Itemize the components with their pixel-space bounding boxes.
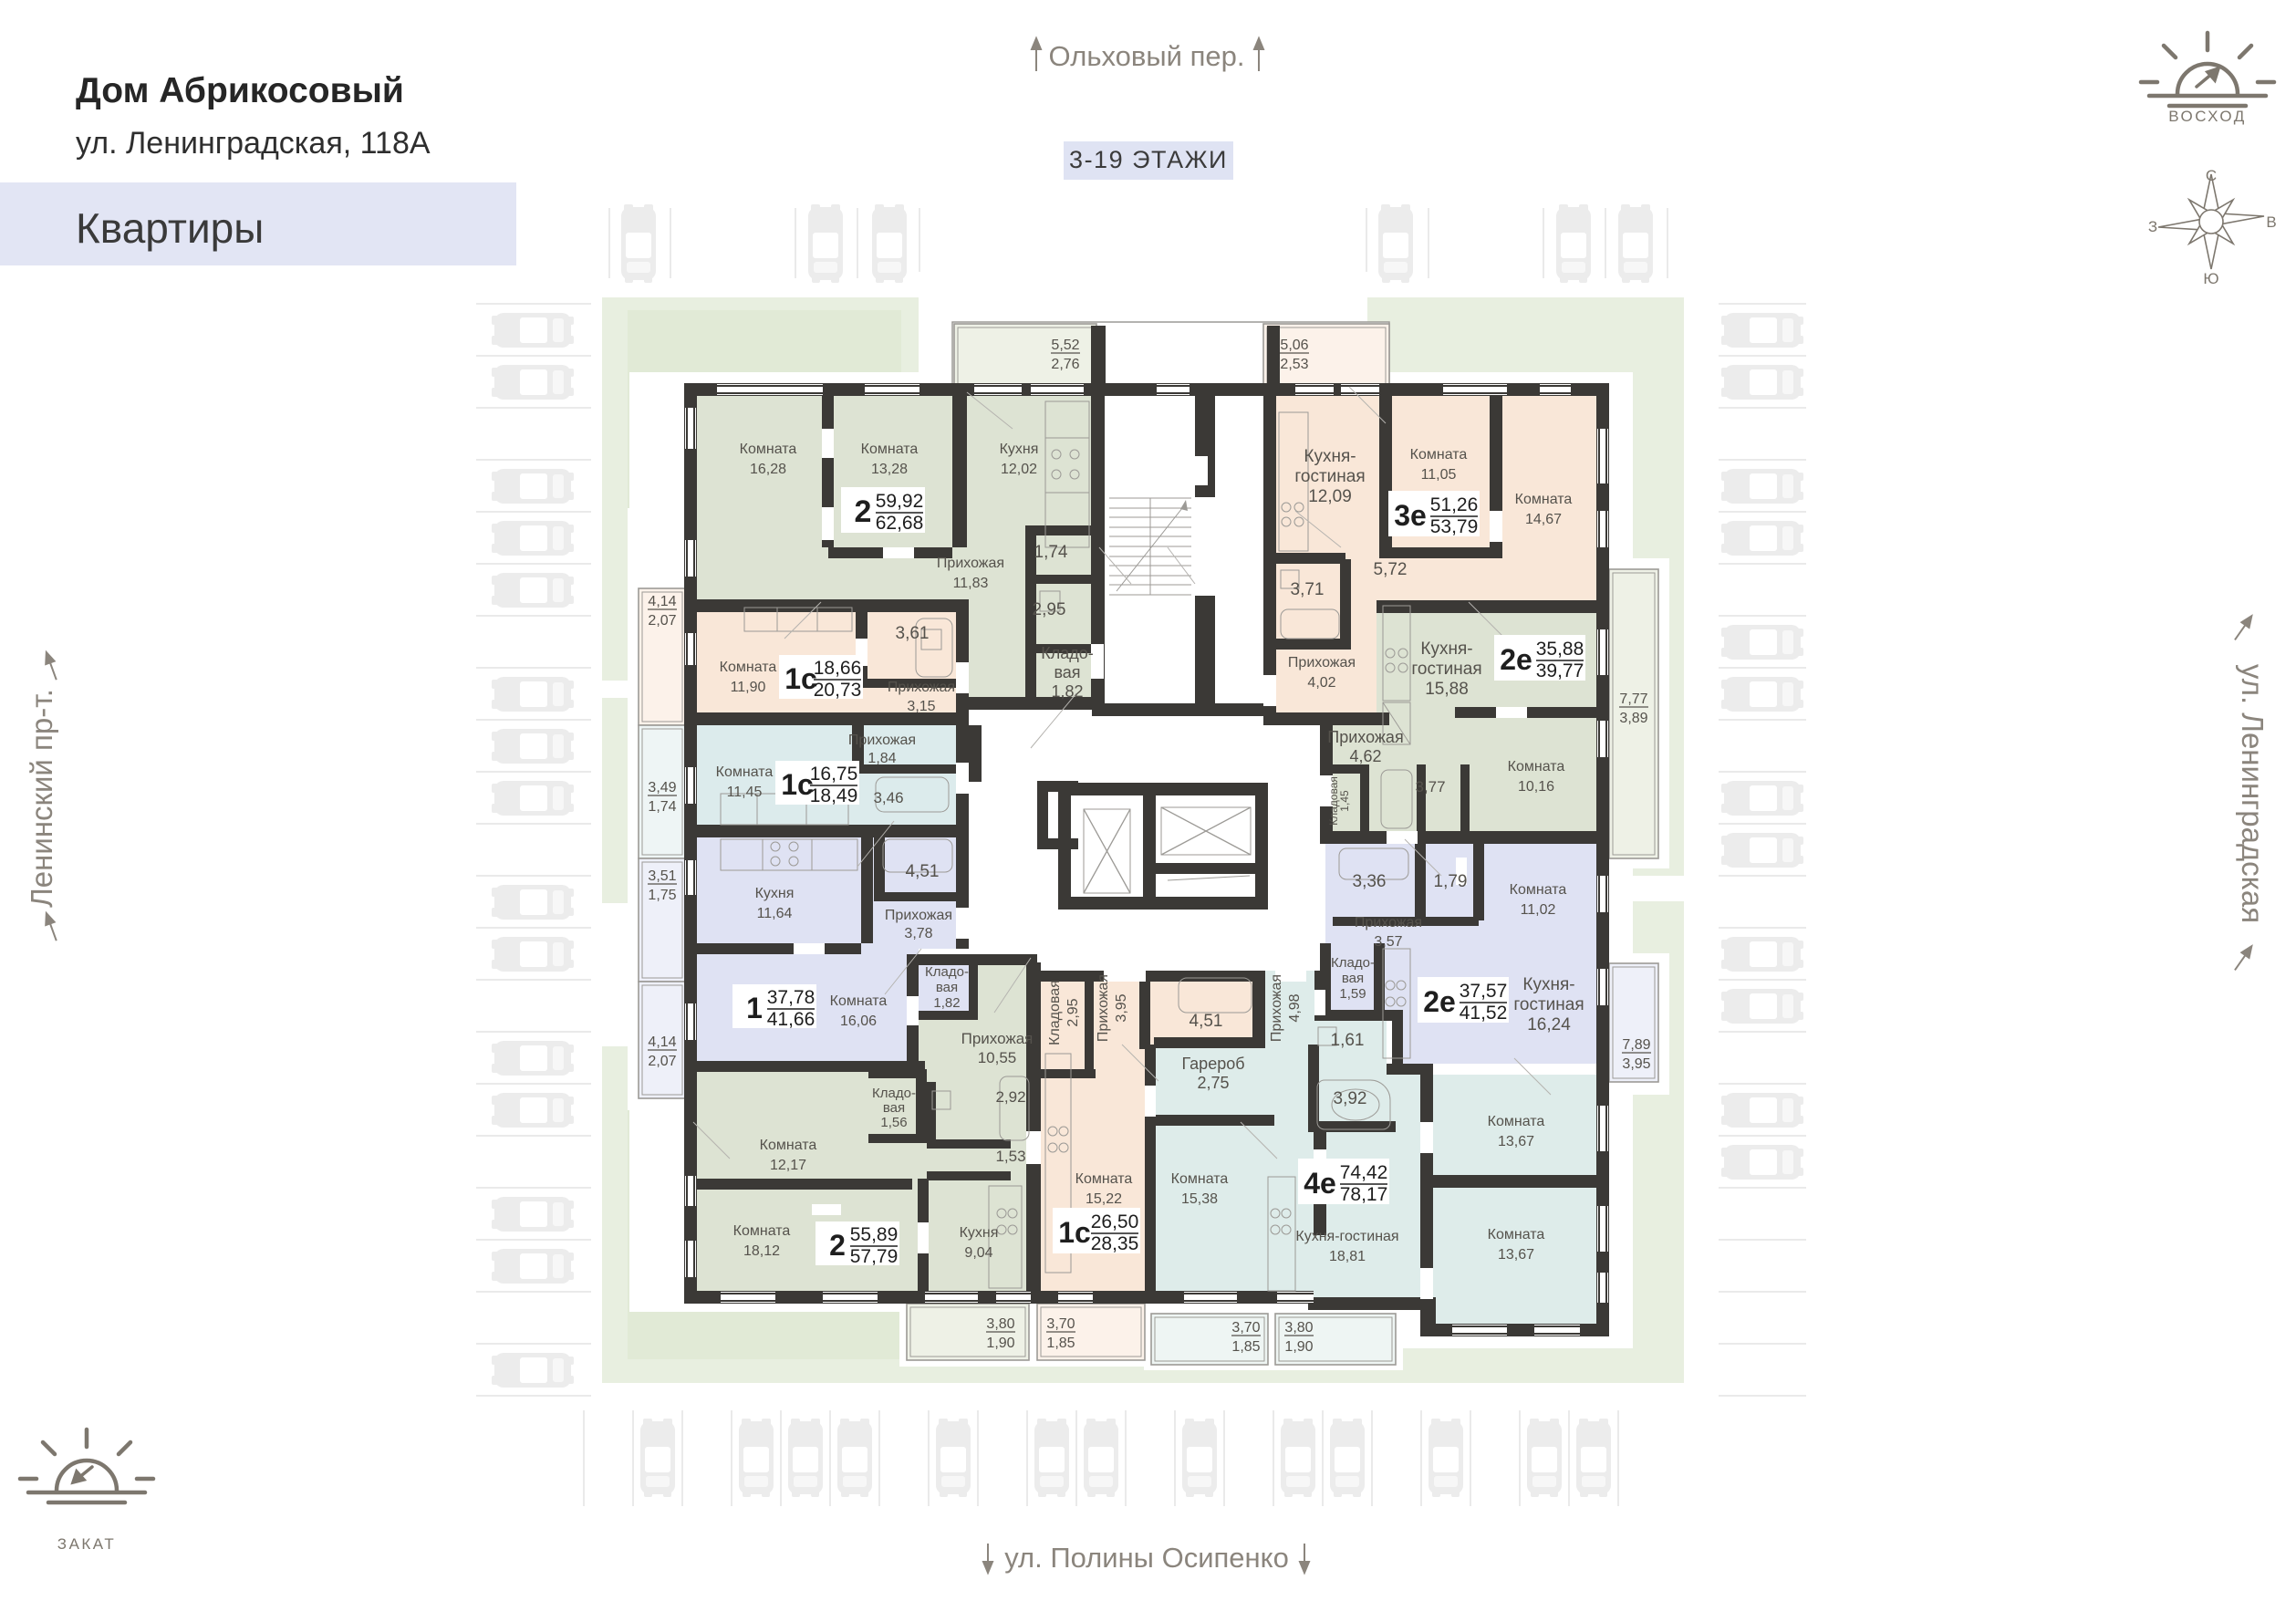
svg-text:20,73: 20,73 xyxy=(814,680,862,701)
svg-text:4,14: 4,14 xyxy=(648,594,676,609)
svg-text:18,66: 18,66 xyxy=(814,658,862,679)
svg-text:З: З xyxy=(2148,218,2157,235)
svg-text:1,53: 1,53 xyxy=(995,1148,1025,1165)
svg-text:41,66: 41,66 xyxy=(767,1009,816,1030)
svg-text:26,50: 26,50 xyxy=(1091,1211,1139,1232)
svg-text:Кухня: Кухня xyxy=(1000,442,1039,457)
svg-text:гостиная: гостиная xyxy=(1294,467,1365,486)
svg-text:7,77: 7,77 xyxy=(1619,691,1647,707)
svg-text:1,90: 1,90 xyxy=(1284,1339,1313,1355)
svg-text:1: 1 xyxy=(746,992,763,1024)
svg-text:1,74: 1,74 xyxy=(1034,543,1068,562)
svg-text:Кухня-: Кухня- xyxy=(1420,639,1472,659)
svg-text:3,15: 3,15 xyxy=(907,699,935,714)
svg-text:2,76: 2,76 xyxy=(1051,357,1079,372)
svg-text:28,35: 28,35 xyxy=(1091,1233,1139,1254)
svg-text:Ленинский пр-т.: Ленинский пр-т. xyxy=(25,689,58,908)
svg-text:1,56: 1,56 xyxy=(880,1115,907,1130)
svg-text:Прихожая: Прихожая xyxy=(1355,915,1422,930)
svg-text:62,68: 62,68 xyxy=(876,513,924,534)
svg-text:1,84: 1,84 xyxy=(867,751,896,766)
svg-text:1с: 1с xyxy=(1058,1216,1091,1249)
svg-text:Прихожая: Прихожая xyxy=(1096,974,1111,1042)
svg-text:Комната: Комната xyxy=(716,764,774,780)
svg-text:59,92: 59,92 xyxy=(876,491,924,512)
svg-text:3,80: 3,80 xyxy=(986,1316,1014,1332)
svg-text:ул. Ленинградская, 118А: ул. Ленинградская, 118А xyxy=(76,126,431,161)
svg-text:Комната: Комната xyxy=(1510,882,1567,898)
svg-text:15,22: 15,22 xyxy=(1086,1191,1122,1207)
svg-text:5,06: 5,06 xyxy=(1280,338,1308,353)
svg-text:Кладовая: Кладовая xyxy=(1047,980,1063,1045)
svg-text:Прихожая: Прихожая xyxy=(1269,974,1284,1042)
svg-text:Кладо-: Кладо- xyxy=(1331,955,1375,971)
svg-text:Прихожая: Прихожая xyxy=(888,680,955,695)
svg-text:11,83: 11,83 xyxy=(953,576,989,591)
svg-text:4,51: 4,51 xyxy=(906,862,940,881)
svg-text:Дом Абрикосовый: Дом Абрикосовый xyxy=(76,71,404,110)
svg-text:12,02: 12,02 xyxy=(1001,462,1037,477)
svg-text:5,52: 5,52 xyxy=(1051,338,1079,353)
svg-text:вая: вая xyxy=(936,980,958,995)
svg-text:1с: 1с xyxy=(784,662,817,695)
svg-text:3,89: 3,89 xyxy=(1619,711,1647,726)
svg-text:74,42: 74,42 xyxy=(1340,1162,1388,1183)
svg-text:3,78: 3,78 xyxy=(904,926,932,941)
svg-text:1,90: 1,90 xyxy=(986,1336,1014,1351)
svg-text:14,67: 14,67 xyxy=(1525,512,1562,527)
svg-text:2е: 2е xyxy=(1423,985,1456,1018)
svg-text:вая: вая xyxy=(1054,663,1080,681)
svg-text:7,89: 7,89 xyxy=(1622,1037,1650,1053)
svg-text:1,61: 1,61 xyxy=(1331,1031,1365,1050)
svg-text:3,71: 3,71 xyxy=(1291,580,1325,599)
svg-text:2,07: 2,07 xyxy=(648,613,676,629)
svg-text:11,90: 11,90 xyxy=(731,680,766,695)
svg-text:2: 2 xyxy=(855,494,872,529)
svg-text:Кухня-гостиная: Кухня-гостиная xyxy=(1295,1229,1398,1244)
svg-text:вая: вая xyxy=(1342,971,1364,986)
svg-text:11,45: 11,45 xyxy=(727,785,763,800)
svg-text:57,79: 57,79 xyxy=(850,1246,899,1267)
svg-text:11,64: 11,64 xyxy=(757,906,793,921)
svg-text:ЗАКАТ: ЗАКАТ xyxy=(57,1535,116,1553)
svg-text:4е: 4е xyxy=(1304,1167,1336,1200)
svg-text:3,46: 3,46 xyxy=(873,789,903,806)
svg-text:18,49: 18,49 xyxy=(810,785,858,806)
svg-text:Прихожая: Прихожая xyxy=(885,908,952,923)
svg-text:1,75: 1,75 xyxy=(648,888,676,903)
svg-text:Ольховый пер.: Ольховый пер. xyxy=(1049,40,1245,72)
svg-text:2,07: 2,07 xyxy=(648,1054,676,1069)
svg-text:Комната: Комната xyxy=(720,660,777,675)
svg-text:51,26: 51,26 xyxy=(1430,494,1479,515)
svg-text:ул. Ленинградская: ул. Ленинградская xyxy=(2236,664,2270,923)
svg-text:Кухня: Кухня xyxy=(960,1225,999,1241)
svg-text:3,49: 3,49 xyxy=(648,780,676,795)
svg-text:2,95: 2,95 xyxy=(1065,998,1081,1026)
svg-text:4,02: 4,02 xyxy=(1307,675,1335,691)
svg-text:Гарероб: Гарероб xyxy=(1181,1055,1244,1073)
svg-text:В: В xyxy=(2266,213,2276,231)
svg-text:3,57: 3,57 xyxy=(1374,934,1402,950)
svg-text:3,92: 3,92 xyxy=(1334,1089,1367,1108)
svg-text:12,17: 12,17 xyxy=(770,1158,806,1173)
svg-text:Комната: Комната xyxy=(1515,492,1573,507)
svg-text:4,62: 4,62 xyxy=(1349,747,1381,765)
svg-text:3,95: 3,95 xyxy=(1114,993,1129,1022)
svg-text:Комната: Комната xyxy=(1488,1114,1545,1129)
svg-text:гостиная: гостиная xyxy=(1513,995,1584,1014)
svg-text:Комната: Комната xyxy=(1488,1227,1545,1242)
svg-text:3,95: 3,95 xyxy=(1622,1056,1650,1072)
svg-text:37,78: 37,78 xyxy=(767,987,816,1008)
svg-text:1,85: 1,85 xyxy=(1046,1336,1075,1351)
svg-text:Комната: Комната xyxy=(861,442,919,457)
svg-text:ВОСХОД: ВОСХОД xyxy=(2168,108,2246,125)
svg-text:3,36: 3,36 xyxy=(1353,872,1387,891)
svg-text:16,06: 16,06 xyxy=(840,1014,877,1029)
svg-text:3-19 ЭТАЖИ: 3-19 ЭТАЖИ xyxy=(1069,146,1228,173)
svg-text:16,24: 16,24 xyxy=(1527,1015,1571,1034)
svg-text:11,02: 11,02 xyxy=(1521,902,1556,918)
svg-text:Прихожая: Прихожая xyxy=(848,733,916,748)
svg-text:Квартиры: Квартиры xyxy=(76,204,264,252)
svg-text:3,77: 3,77 xyxy=(1415,778,1445,795)
svg-text:3,70: 3,70 xyxy=(1046,1316,1075,1332)
svg-text:Ю: Ю xyxy=(2203,270,2218,287)
svg-text:18,81: 18,81 xyxy=(1329,1249,1366,1264)
svg-text:37,57: 37,57 xyxy=(1460,981,1508,1002)
svg-text:3е: 3е xyxy=(1394,499,1427,532)
svg-text:13,67: 13,67 xyxy=(1498,1134,1534,1149)
svg-text:18,12: 18,12 xyxy=(743,1243,780,1259)
svg-text:Кладо-: Кладо- xyxy=(925,964,969,980)
svg-text:Кухня-: Кухня- xyxy=(1522,975,1574,994)
svg-text:1,74: 1,74 xyxy=(648,799,676,815)
svg-text:Комната: Комната xyxy=(733,1223,791,1239)
svg-text:78,17: 78,17 xyxy=(1340,1184,1388,1205)
svg-text:Прихожая: Прихожая xyxy=(937,556,1004,571)
svg-text:3,61: 3,61 xyxy=(896,624,930,643)
svg-text:2,53: 2,53 xyxy=(1280,357,1308,372)
svg-text:Комната: Комната xyxy=(760,1138,817,1153)
svg-text:1,85: 1,85 xyxy=(1231,1339,1260,1355)
svg-text:2е: 2е xyxy=(1500,643,1532,676)
svg-text:ул. Полины Осипенко: ул. Полины Осипенко xyxy=(1004,1542,1289,1574)
svg-text:Прихожая: Прихожая xyxy=(961,1030,1034,1047)
svg-text:39,77: 39,77 xyxy=(1536,660,1584,681)
svg-text:5,72: 5,72 xyxy=(1374,560,1408,579)
svg-text:Комната: Комната xyxy=(1410,447,1468,463)
svg-text:3,80: 3,80 xyxy=(1284,1320,1313,1336)
svg-text:Кухня: Кухня xyxy=(755,886,795,901)
svg-text:С: С xyxy=(2206,167,2217,184)
svg-text:вая: вая xyxy=(883,1100,905,1116)
svg-text:Прихожая: Прихожая xyxy=(1327,728,1403,746)
svg-text:13,67: 13,67 xyxy=(1498,1247,1534,1263)
svg-text:1,82: 1,82 xyxy=(1051,682,1083,701)
svg-text:2: 2 xyxy=(829,1229,846,1262)
svg-text:53,79: 53,79 xyxy=(1430,516,1479,537)
svg-text:Кладо-: Кладо- xyxy=(1041,644,1094,662)
svg-text:12,09: 12,09 xyxy=(1308,487,1352,506)
svg-text:15,38: 15,38 xyxy=(1181,1191,1218,1207)
svg-text:16,75: 16,75 xyxy=(810,764,858,785)
svg-text:9,04: 9,04 xyxy=(964,1245,992,1261)
svg-text:10,16: 10,16 xyxy=(1518,779,1554,795)
svg-text:35,88: 35,88 xyxy=(1536,639,1584,660)
svg-text:1,79: 1,79 xyxy=(1434,872,1468,891)
svg-text:55,89: 55,89 xyxy=(850,1224,899,1245)
svg-text:1,45: 1,45 xyxy=(1338,790,1351,812)
svg-text:41,52: 41,52 xyxy=(1460,1003,1508,1024)
svg-text:Комната: Комната xyxy=(1171,1171,1229,1187)
svg-text:1,59: 1,59 xyxy=(1339,986,1366,1002)
svg-text:16,28: 16,28 xyxy=(750,462,786,477)
svg-text:Комната: Комната xyxy=(1508,759,1565,775)
svg-text:Кладо-: Кладо- xyxy=(872,1086,916,1101)
svg-text:13,28: 13,28 xyxy=(871,462,908,477)
svg-text:1с: 1с xyxy=(781,768,814,801)
svg-text:2,75: 2,75 xyxy=(1197,1074,1229,1092)
svg-text:4,98: 4,98 xyxy=(1287,993,1303,1022)
svg-text:3,51: 3,51 xyxy=(648,868,676,884)
svg-text:2,92: 2,92 xyxy=(995,1088,1025,1106)
svg-text:15,88: 15,88 xyxy=(1425,680,1469,699)
svg-text:Комната: Комната xyxy=(830,993,888,1009)
svg-text:3,70: 3,70 xyxy=(1231,1320,1260,1336)
svg-text:Кухня-: Кухня- xyxy=(1304,447,1356,466)
svg-text:4,51: 4,51 xyxy=(1190,1012,1223,1031)
svg-text:Прихожая: Прихожая xyxy=(1288,655,1356,671)
svg-text:гостиная: гостиная xyxy=(1411,660,1481,679)
svg-text:1,82: 1,82 xyxy=(933,995,960,1011)
svg-text:Комната: Комната xyxy=(740,442,797,457)
svg-text:10,55: 10,55 xyxy=(978,1049,1017,1066)
svg-text:Комната: Комната xyxy=(1075,1171,1133,1187)
svg-text:2,95: 2,95 xyxy=(1033,600,1066,619)
svg-text:11,05: 11,05 xyxy=(1421,467,1457,483)
svg-text:4,14: 4,14 xyxy=(648,1034,676,1050)
